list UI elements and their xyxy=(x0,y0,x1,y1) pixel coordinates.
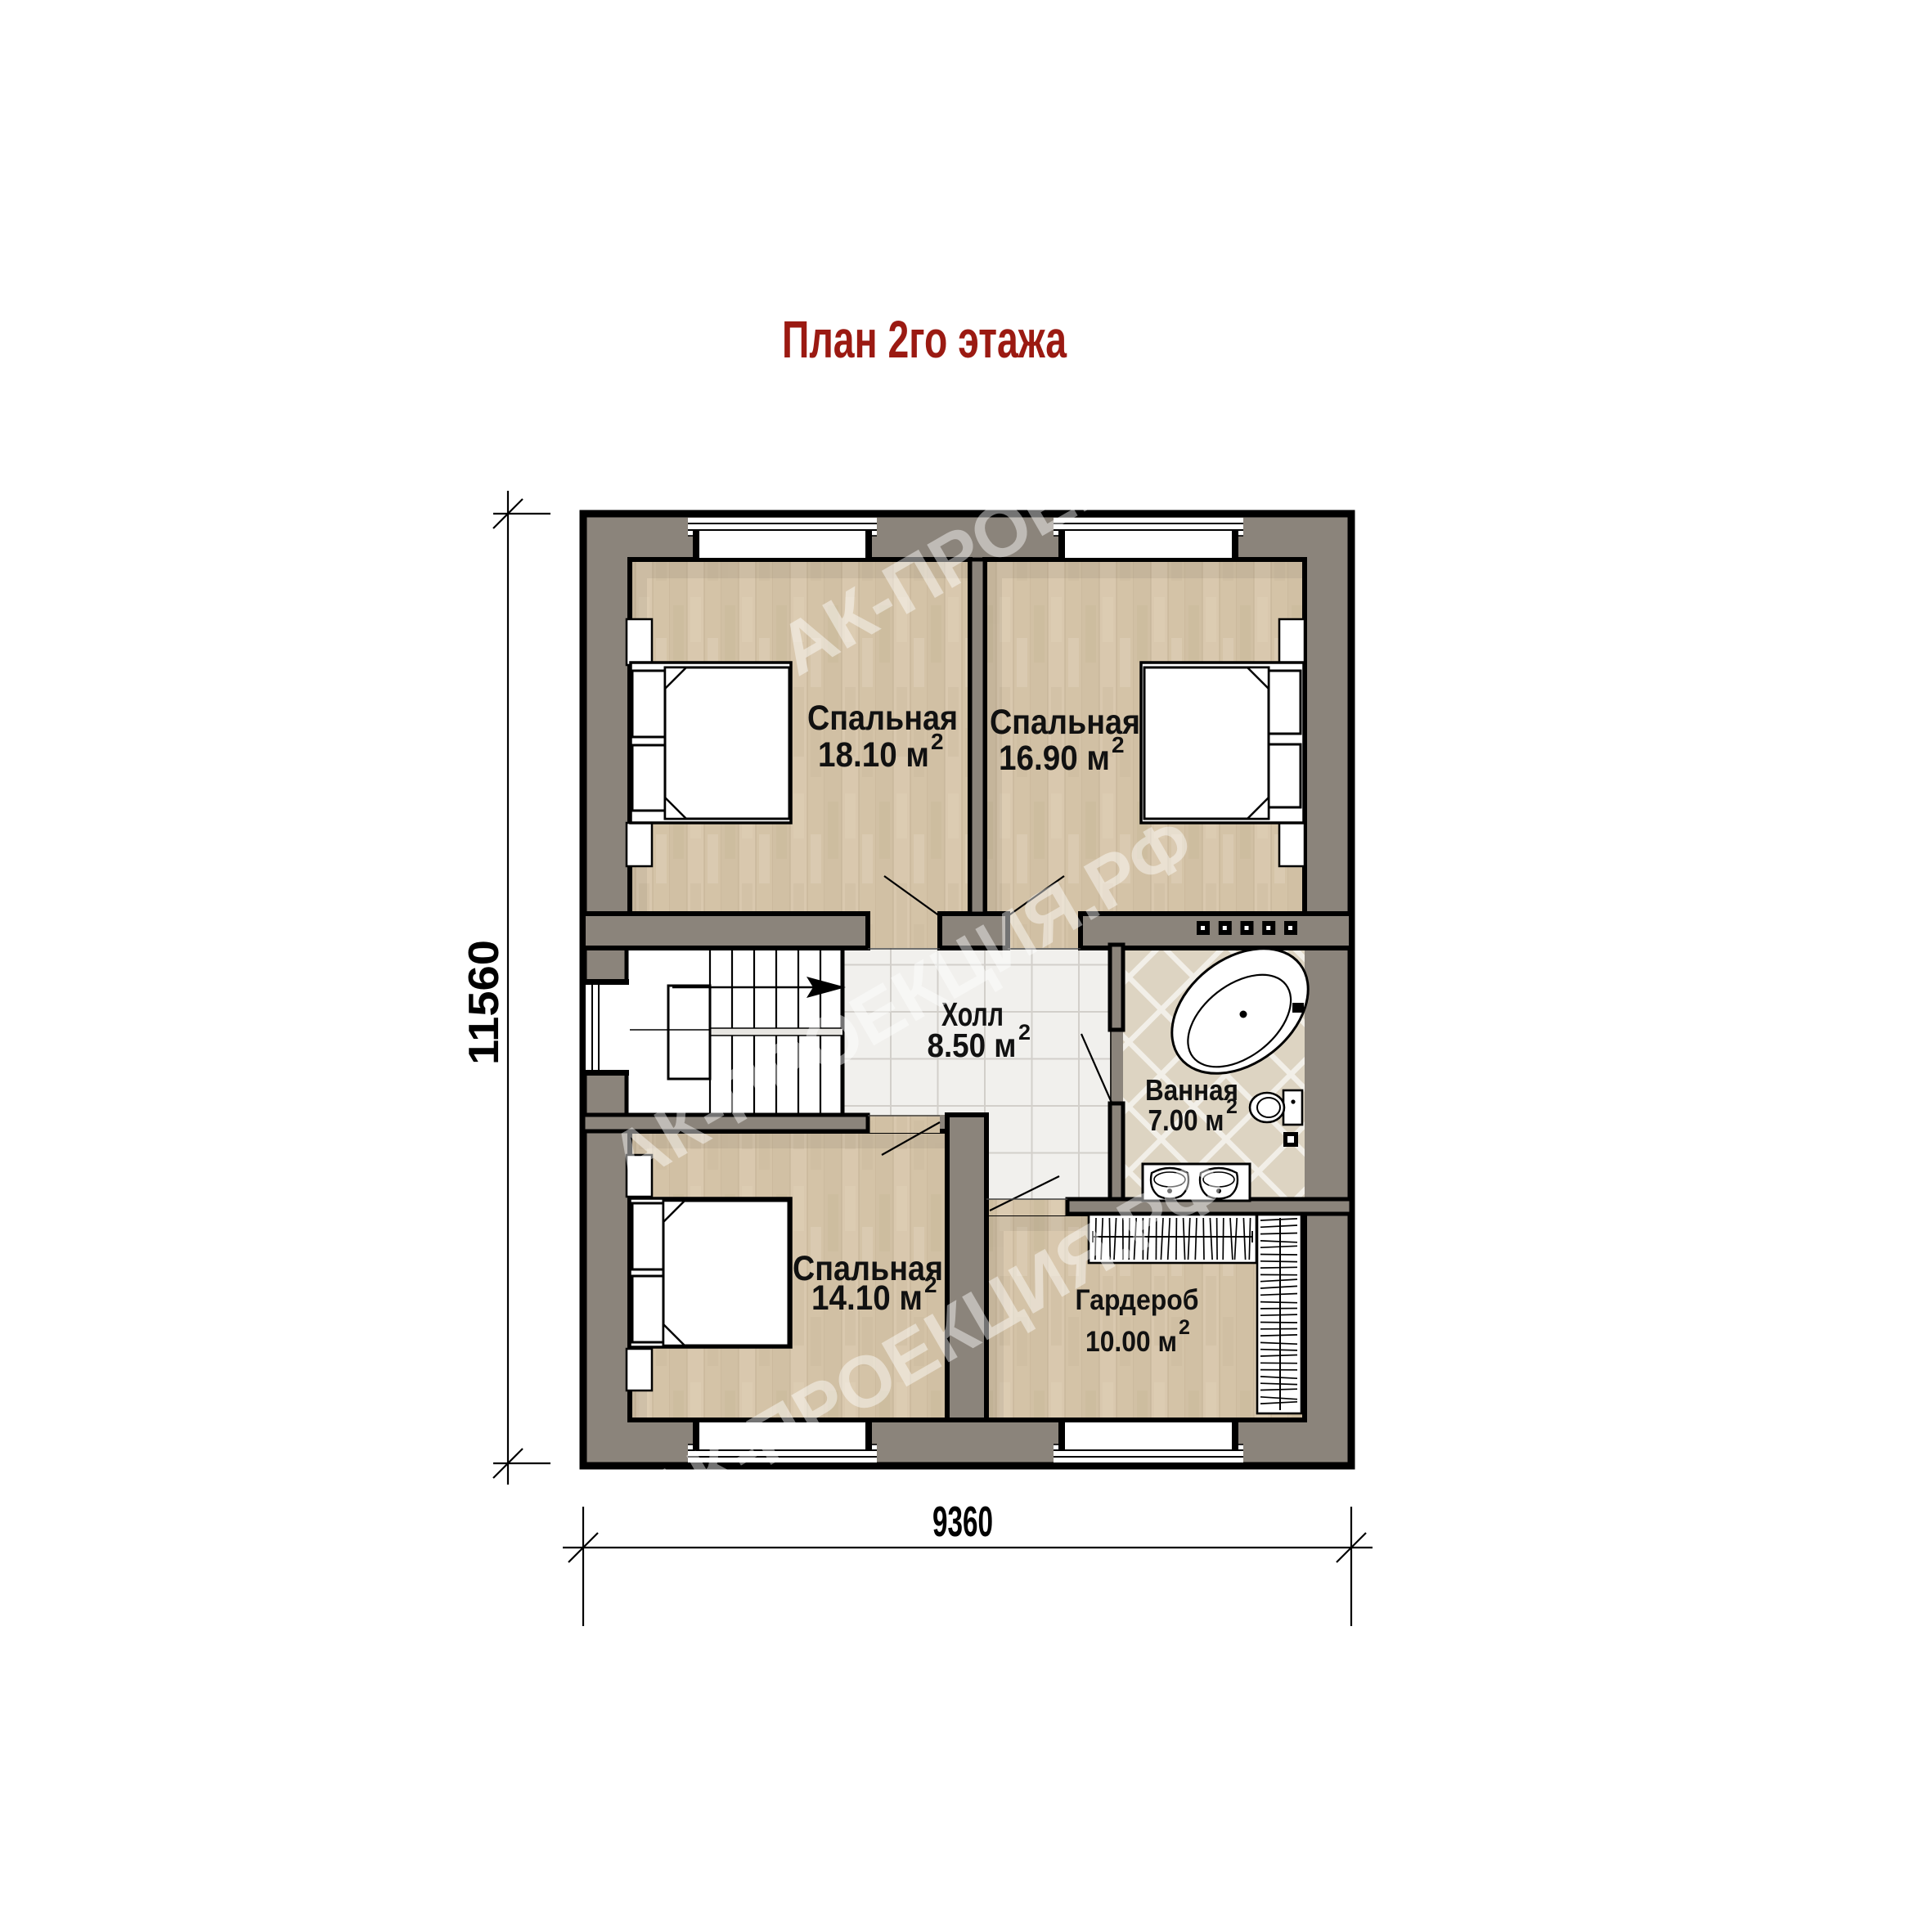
svg-text:16.90 м: 16.90 м xyxy=(999,739,1110,778)
svg-text:10.00 м: 10.00 м xyxy=(1085,1326,1177,1358)
svg-text:2: 2 xyxy=(1226,1095,1238,1118)
svg-text:2: 2 xyxy=(1179,1316,1190,1339)
svg-text:2: 2 xyxy=(1112,732,1125,757)
svg-text:Ванная: Ванная xyxy=(1145,1073,1238,1107)
svg-text:9360: 9360 xyxy=(932,1498,993,1546)
svg-text:8.50 м: 8.50 м xyxy=(928,1027,1017,1064)
svg-text:11560: 11560 xyxy=(461,940,508,1065)
svg-text:2: 2 xyxy=(1018,1020,1031,1045)
svg-text:План 2го этажа: План 2го этажа xyxy=(782,310,1067,369)
svg-text:2: 2 xyxy=(931,729,944,754)
svg-text:7.00 м: 7.00 м xyxy=(1148,1103,1224,1137)
svg-text:18.10 м: 18.10 м xyxy=(818,735,929,775)
